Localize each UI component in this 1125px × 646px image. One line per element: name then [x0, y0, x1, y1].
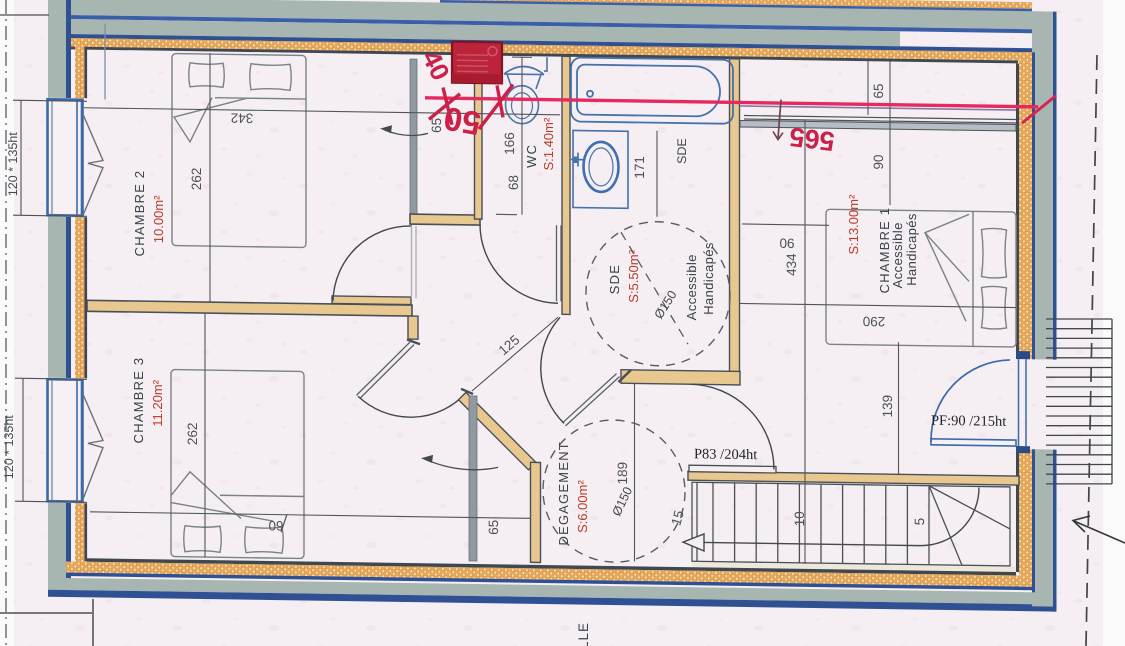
svg-text:166: 166 [502, 132, 517, 155]
svg-text:189: 189 [615, 462, 630, 485]
svg-text:PF:90 /215ht: PF:90 /215ht [931, 413, 1006, 430]
svg-text:262: 262 [185, 422, 200, 445]
svg-text:171: 171 [632, 156, 647, 179]
svg-text:290: 290 [863, 314, 886, 329]
svg-text:SDE: SDE [675, 138, 689, 164]
svg-text:65: 65 [871, 83, 886, 98]
svg-text:342: 342 [231, 110, 254, 125]
svg-text:11.20m²: 11.20m² [150, 379, 165, 427]
svg-text:10: 10 [792, 511, 807, 526]
svg-text:ELLE: ELLE [576, 622, 591, 646]
svg-text:Handicapés: Handicapés [904, 213, 919, 286]
svg-text:90: 90 [779, 236, 794, 251]
svg-text:S:6.00m²: S:6.00m² [575, 479, 590, 533]
svg-text:DEGAGEMENT: DEGAGEMENT [556, 441, 571, 546]
svg-text:565: 565 [788, 121, 836, 156]
svg-text:65: 65 [486, 520, 501, 535]
svg-text:CHAMBRE 3: CHAMBRE 3 [131, 357, 146, 444]
svg-text:10.00m²: 10.00m² [151, 195, 166, 244]
svg-text:65: 65 [429, 118, 444, 133]
svg-text:434: 434 [784, 253, 799, 276]
svg-text:68: 68 [506, 175, 521, 190]
svg-text:90: 90 [871, 154, 886, 169]
svg-text:Accessible: Accessible [890, 222, 905, 288]
svg-text:Accessible: Accessible [684, 254, 699, 320]
svg-text:S:13.00m²: S:13.00m² [846, 194, 861, 255]
svg-text:120 * 135ht: 120 * 135ht [2, 415, 16, 480]
svg-text:WC: WC [524, 144, 539, 168]
svg-text:S:1.40m²: S:1.40m² [541, 117, 556, 171]
svg-text:Handicapés: Handicapés [701, 242, 716, 315]
svg-text:262: 262 [189, 168, 204, 191]
svg-text:CHAMBRE 2: CHAMBRE 2 [132, 170, 147, 257]
svg-text:S:5.50m²: S:5.50m² [626, 249, 641, 303]
svg-text:50: 50 [441, 100, 483, 143]
svg-text:SDE: SDE [607, 264, 622, 295]
svg-text:120 * 135ht: 120 * 135ht [6, 132, 20, 197]
svg-text:5: 5 [912, 518, 927, 526]
svg-text:139: 139 [880, 395, 895, 418]
svg-text:P83 /204ht: P83 /204ht [694, 446, 757, 463]
